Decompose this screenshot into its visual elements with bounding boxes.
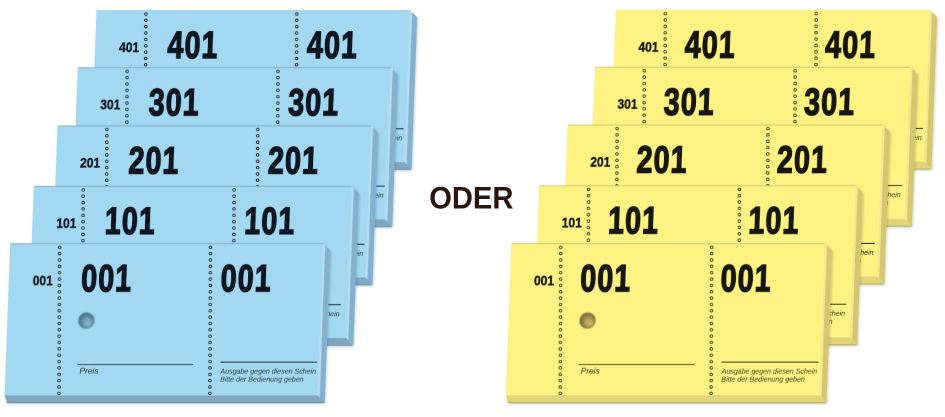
svg-text:301: 301 xyxy=(100,96,121,112)
svg-text:001: 001 xyxy=(220,259,273,301)
svg-text:Ausgabe gegen diesen Schein: Ausgabe gegen diesen Schein xyxy=(721,369,818,376)
svg-text:301: 301 xyxy=(287,83,340,125)
svg-text:301: 301 xyxy=(148,83,201,125)
svg-text:201: 201 xyxy=(590,154,611,170)
svg-text:401: 401 xyxy=(167,25,220,67)
svg-text:001: 001 xyxy=(579,259,632,301)
svg-text:201: 201 xyxy=(636,140,689,182)
svg-text:ODER: ODER xyxy=(429,180,513,215)
svg-text:301: 301 xyxy=(803,82,856,124)
svg-text:001: 001 xyxy=(33,272,54,288)
svg-text:Bitte der Bedienung geben: Bitte der Bedienung geben xyxy=(721,377,805,384)
svg-text:201: 201 xyxy=(128,141,181,183)
svg-text:201: 201 xyxy=(80,155,101,171)
svg-text:401: 401 xyxy=(638,39,659,55)
svg-text:101: 101 xyxy=(104,201,157,243)
svg-text:101: 101 xyxy=(56,215,77,231)
svg-text:201: 201 xyxy=(776,140,829,182)
svg-text:301: 301 xyxy=(663,82,716,124)
svg-text:001: 001 xyxy=(80,259,133,301)
svg-text:001: 001 xyxy=(720,259,773,301)
svg-text:101: 101 xyxy=(607,201,660,243)
svg-text:401: 401 xyxy=(119,39,140,55)
svg-text:401: 401 xyxy=(824,25,877,67)
svg-text:401: 401 xyxy=(684,25,737,67)
svg-text:101: 101 xyxy=(748,201,801,243)
svg-text:101: 101 xyxy=(244,201,297,243)
svg-text:Preis: Preis xyxy=(79,366,99,376)
svg-text:Preis: Preis xyxy=(581,366,601,376)
svg-text:401: 401 xyxy=(306,25,359,67)
svg-text:301: 301 xyxy=(617,96,638,112)
svg-text:201: 201 xyxy=(267,141,320,183)
svg-text:101: 101 xyxy=(562,215,583,231)
svg-text:Ausgabe gegen diesen Schein: Ausgabe gegen diesen Schein xyxy=(219,369,316,376)
svg-text:001: 001 xyxy=(534,272,555,288)
svg-text:Bitte der Bedienung geben: Bitte der Bedienung geben xyxy=(220,377,304,384)
